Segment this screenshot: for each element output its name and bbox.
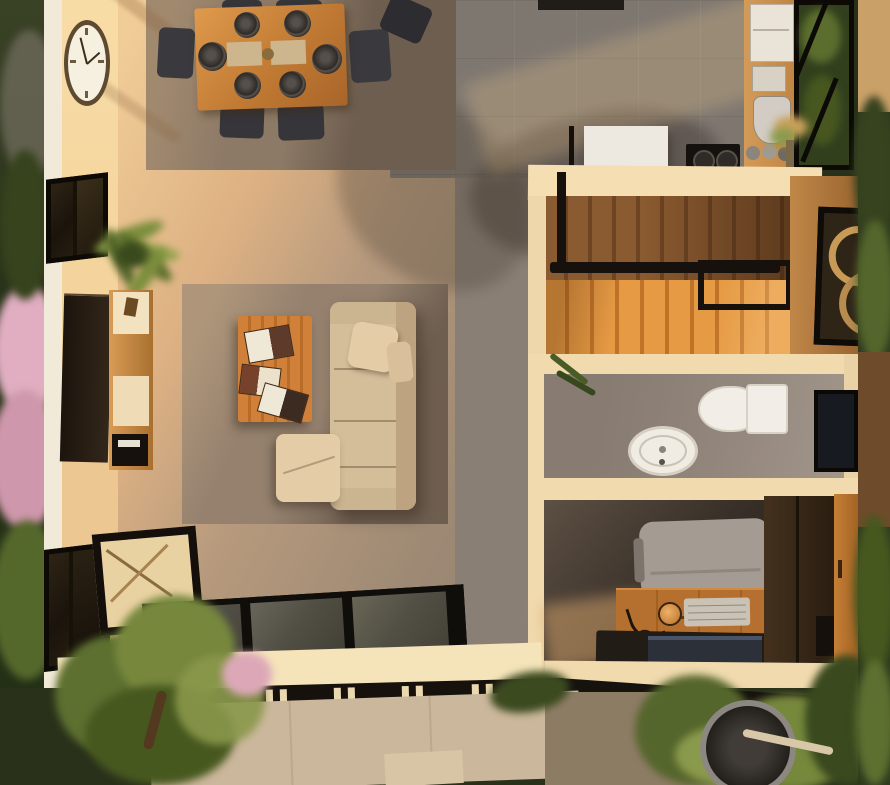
window-pane xyxy=(51,181,73,258)
flower-vase xyxy=(770,114,812,172)
clock-tick xyxy=(98,60,104,63)
walkway-joint xyxy=(289,701,294,785)
sink-drain xyxy=(659,446,666,453)
foliage xyxy=(856,220,890,360)
wall-clock xyxy=(64,20,110,106)
wall-tv xyxy=(60,293,112,462)
sink-basin xyxy=(628,426,698,476)
plate xyxy=(284,10,311,37)
plate xyxy=(234,12,260,38)
sofa-backrest xyxy=(396,302,416,510)
chair-arm xyxy=(633,538,645,582)
chair-fold-line xyxy=(110,544,169,603)
key-row xyxy=(688,618,746,620)
toilet xyxy=(698,384,786,430)
range-hood xyxy=(538,0,624,10)
sink-faucet xyxy=(659,459,665,465)
sofa-arm xyxy=(330,302,396,324)
bathroom-mirror xyxy=(814,390,858,472)
foliage xyxy=(854,515,890,675)
garden-right xyxy=(858,0,890,785)
jar xyxy=(746,146,760,160)
chaise-fold xyxy=(283,456,335,475)
clock-tick xyxy=(85,91,88,98)
bathroom-plant xyxy=(542,358,606,428)
sofa-seam xyxy=(334,420,396,422)
plate xyxy=(198,42,227,71)
clock-face xyxy=(68,25,106,101)
fridge-seam xyxy=(753,29,789,31)
clock-tick xyxy=(85,28,88,35)
ottoman-chaise xyxy=(276,434,340,502)
plate xyxy=(279,71,306,98)
clock-hand-minute xyxy=(79,38,87,65)
vase-body xyxy=(786,140,794,168)
door-handle xyxy=(838,560,842,578)
key-row xyxy=(688,604,746,606)
foliage xyxy=(856,660,890,785)
office-chair xyxy=(639,518,772,598)
placemat xyxy=(270,40,306,65)
speaker xyxy=(112,434,148,466)
chair-back-seam xyxy=(650,568,760,575)
small-appliance xyxy=(752,66,786,92)
stair-railing-post xyxy=(557,172,566,272)
pink-flowers-small xyxy=(222,652,272,696)
foliage xyxy=(0,150,50,300)
speaker-grille xyxy=(118,440,140,447)
throw-cushion xyxy=(386,341,414,383)
stair-railing-loop xyxy=(698,260,792,310)
plate xyxy=(312,44,342,74)
toilet-tank xyxy=(746,384,788,434)
key-row xyxy=(688,611,746,613)
keyboard xyxy=(684,597,750,626)
dining-chair xyxy=(157,27,196,79)
dining-chair xyxy=(348,29,392,84)
plate xyxy=(234,72,261,99)
sofa-seam xyxy=(334,466,396,468)
floorplan-render xyxy=(0,0,890,785)
glass-pane xyxy=(352,591,449,651)
wood-fence xyxy=(858,352,890,527)
dining-chair xyxy=(277,103,324,141)
refrigerator xyxy=(750,4,794,62)
palm-center xyxy=(116,242,146,268)
stepping-stone xyxy=(384,750,464,785)
clock-tick xyxy=(70,60,76,63)
console-shelf xyxy=(113,376,149,426)
stair-left-wall xyxy=(528,196,546,372)
placemat xyxy=(226,41,262,66)
